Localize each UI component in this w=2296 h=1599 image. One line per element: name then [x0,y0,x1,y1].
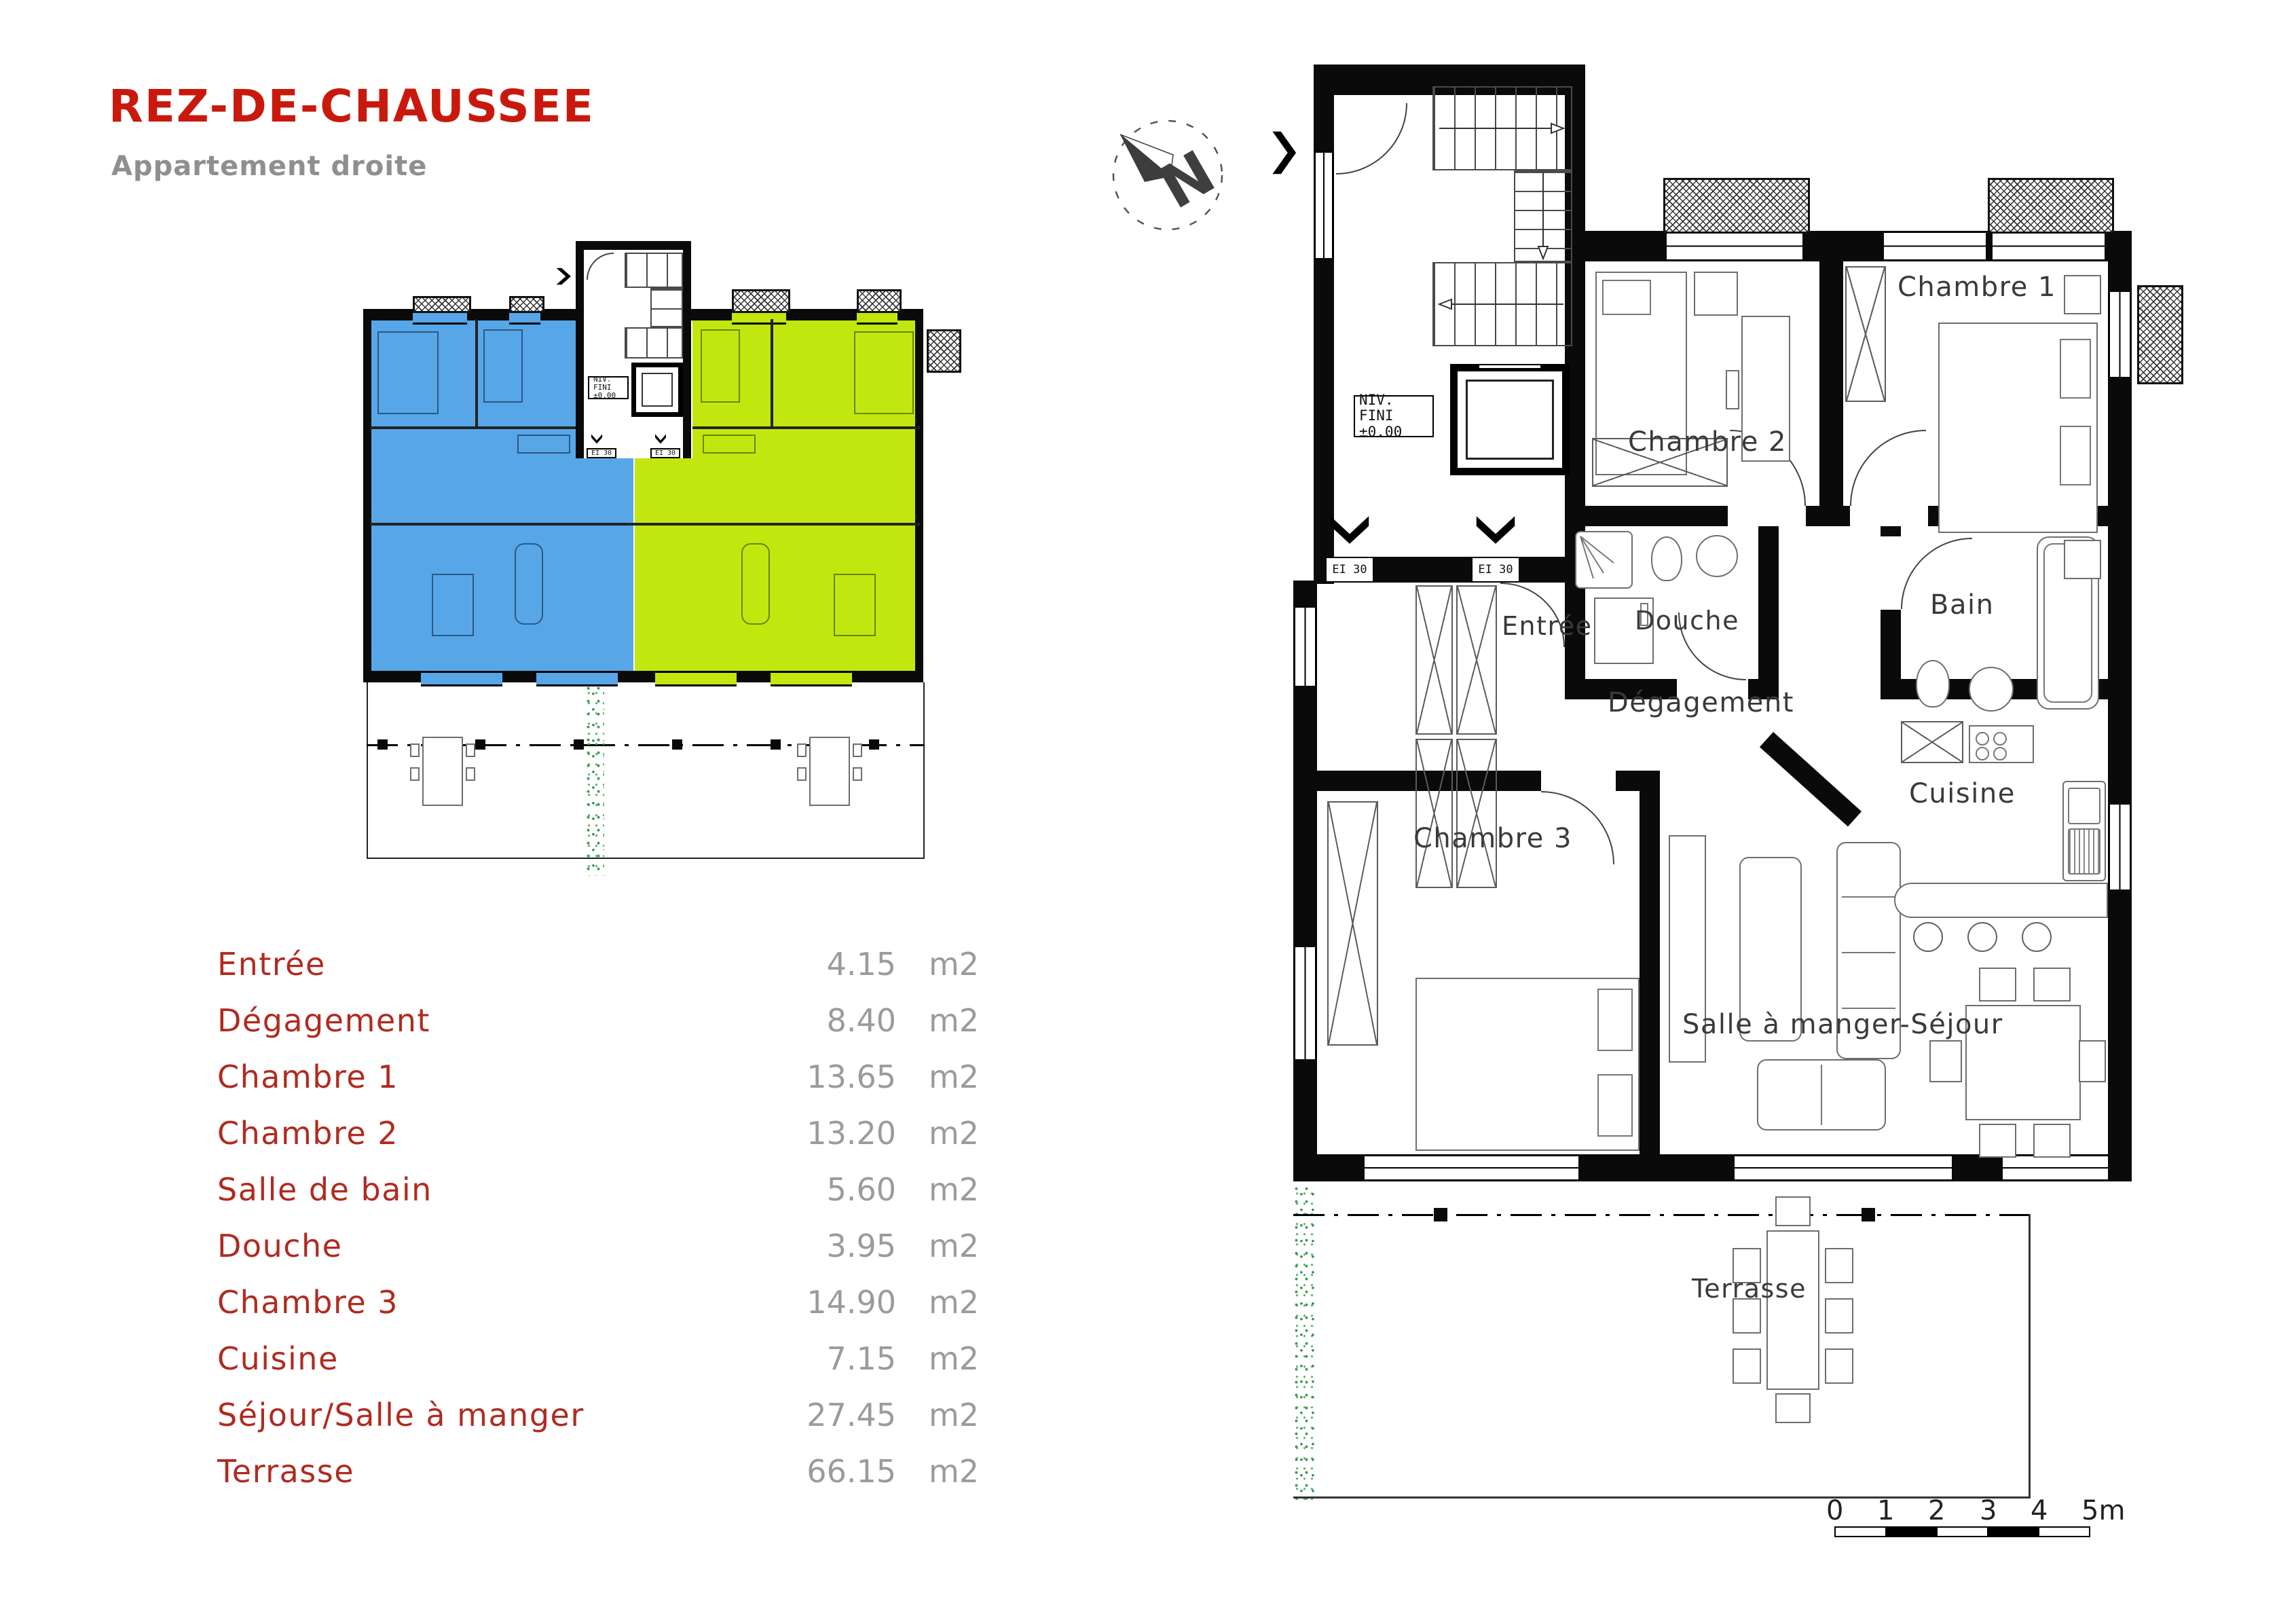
chair [1979,968,2016,1001]
balcony-hatch [927,329,961,373]
chair [2033,968,2071,1001]
scale-tick: 0 [1826,1495,1843,1526]
room-name: Chambre 1 [217,1059,399,1095]
scale-tick: 1 [1877,1495,1894,1526]
wall-segment-diagonal [1760,732,1862,826]
room-name: Chambre 3 [217,1284,399,1321]
stair-direction-arrow [1536,173,1551,260]
room-name: Terrasse [217,1453,354,1490]
niv-fini-value: ±0.00 [1359,424,1432,440]
furniture-bed [483,329,523,403]
stairs [625,327,683,359]
chair [853,767,862,781]
window [1735,1154,1952,1181]
post [377,739,388,750]
hedge-plants [1293,1185,1315,1501]
balcony-hatch [1988,178,2114,234]
window [2108,805,2132,889]
fire-rating-label: EI 30 [1325,557,1374,583]
wall-segment [1758,526,1779,699]
wall-segment [363,309,371,682]
chair [1825,1298,1853,1334]
overview-right-apartment-lower [635,458,920,681]
level-annotation: NIV. FINI ±0.00 [1354,395,1434,437]
furniture-wardrobe [1456,739,1497,888]
scale-tick: 2 [1928,1495,1945,1526]
window [1293,608,1317,686]
entry-arrow-icon [1271,124,1299,182]
kitchen-sink [2062,781,2106,881]
wall-segment [576,241,691,250]
window [2108,292,2132,377]
door-opening [1728,506,1806,526]
toilet [1916,660,1950,707]
chair [1733,1348,1761,1384]
post [1862,1208,1875,1221]
terrace-table [422,737,463,806]
furniture-wardrobe [517,435,570,454]
room-area: 4.15 [760,946,896,982]
kitchen-bar [1894,883,2108,918]
chair [466,767,475,781]
chair [1979,1124,2016,1158]
room-area: 66.15 [760,1453,896,1490]
wall-segment [2108,261,2132,1181]
sink [1696,535,1738,577]
balcony-hatch [857,289,902,313]
door-opening [1850,506,1928,526]
stair-direction-arrow [1438,297,1563,312]
cooktop [1969,725,2034,763]
wall-segment [1640,791,1660,1154]
room-area: 8.40 [760,1002,896,1039]
niv-fini-text: NIV. FINI [1359,392,1432,424]
partition [635,523,920,526]
area-unit: m2 [929,1397,979,1433]
chair [797,767,807,781]
furniture-table [432,574,474,636]
furniture-side-table [1694,272,1738,316]
post [869,739,879,750]
page-subtitle: Appartement droite [111,151,427,182]
room-name: Dégagement [217,1002,430,1039]
partition [475,319,478,428]
furniture-sofa [741,543,770,625]
balcony-hatch [732,289,790,313]
stairs [650,288,683,327]
room-area: 14.90 [760,1284,896,1321]
area-unit: m2 [929,1171,979,1208]
chair [2033,1124,2071,1158]
terrace-edge [1293,1496,2031,1499]
exit-arrow-icon [1329,509,1370,553]
chair [1825,1248,1853,1283]
furniture-wardrobe [1327,801,1378,1046]
area-unit: m2 [929,1115,979,1152]
room-label-chambre-2: Chambre 2 [1628,426,1787,458]
room-label-douche: Douche [1635,606,1739,636]
window [1884,231,1986,261]
wall-segment [576,241,584,458]
room-label-degagement: Dégagement [1608,687,1794,718]
furniture-wardrobe [1415,739,1453,888]
chair [466,743,475,757]
furniture-wardrobe [1415,585,1453,735]
furniture-bed [854,331,914,414]
fire-rating-label: EI 30 [587,448,616,458]
scale-tick: 5m [2081,1495,2125,1526]
floor-plan-sheet: REZ-DE-CHAUSSEE Appartement droite N [0,0,2296,1599]
window [1667,231,1802,261]
chair [797,743,807,757]
scale-segment [1834,1526,1887,1537]
room-name: Douche [217,1228,342,1264]
wall-segment [1819,261,1843,506]
furniture-chair [1726,370,1739,409]
door-arc [1336,103,1407,174]
scale-tick: 3 [1980,1495,1997,1526]
furniture-wardrobe [703,435,756,454]
terrace-table [809,737,850,806]
chair [410,743,420,757]
area-unit: m2 [929,1340,979,1377]
fire-rating-label: EI 30 [650,448,680,458]
sink [1969,667,2014,712]
room-name: Cuisine [217,1340,339,1377]
chair [1775,1196,1811,1226]
area-unit: m2 [929,1059,979,1095]
room-label-cuisine: Cuisine [1909,778,2016,809]
terrace-edge [2029,1214,2031,1498]
scale-segment [1987,1526,2039,1537]
scale-segment [1885,1526,1938,1537]
room-label-entree: Entrée [1502,611,1593,641]
furniture-wardrobe [1456,585,1497,735]
balcony-hatch [413,296,471,313]
room-label-bain: Bain [1930,589,1994,621]
page-title: REZ-DE-CHAUSSEE [109,80,595,132]
chair [1775,1393,1811,1423]
chair [853,743,862,757]
area-unit: m2 [929,1228,979,1264]
window [1293,947,1317,1059]
room-area: 13.65 [760,1059,896,1095]
area-unit: m2 [929,1453,979,1490]
chair [1825,1348,1853,1384]
window [1365,1154,1578,1181]
room-area: 13.20 [760,1115,896,1152]
furniture-side-table [2064,275,2101,314]
window [1314,153,1334,258]
hedge-plants [585,684,604,876]
chair [1929,1040,1962,1082]
stairs [625,253,683,288]
entry-arrow-icon [555,265,573,288]
chair [2079,1040,2106,1082]
partition [771,319,773,428]
furniture-loveseat [1757,1059,1886,1131]
door-opening [1881,536,1901,610]
post [475,739,485,750]
toilet [1651,536,1682,581]
wall-segment [915,309,923,682]
room-label-terrasse: Terrasse [1692,1274,1807,1304]
exit-arrow-icon [1475,509,1516,553]
window [1993,231,2105,261]
partition [692,426,920,429]
kitchen-cabinet [1901,721,1963,763]
scale-segment [2038,1526,2090,1537]
furniture-bed [701,329,740,403]
room-label-chambre-1: Chambre 1 [1897,272,2056,303]
fire-rating-label: EI 30 [1471,557,1520,583]
room-label-chambre-3: Chambre 3 [1413,823,1572,854]
bar-stool [2022,922,2052,952]
post [771,739,781,750]
furniture-sofa [515,543,543,625]
balcony-hatch [1663,178,1810,234]
exit-arrow-icon [653,432,668,447]
wall-segment [1616,771,1660,791]
room-label-sejour: Salle à manger-Séjour [1682,1009,2003,1040]
door-arc [1850,430,1926,506]
post [672,739,682,750]
bar-stool [1967,922,1997,952]
balcony-hatch [509,296,544,313]
terrace-boundary-line [1293,1214,2030,1216]
niv-fini-value: ±0.00 [593,392,627,400]
partition [370,523,635,526]
room-area: 27.45 [760,1397,896,1433]
post [1434,1208,1447,1221]
niv-fini-text: NIV. FINI [593,375,627,392]
furniture-bed [377,331,439,414]
area-unit: m2 [929,1002,979,1039]
post [574,739,584,750]
scale-segment [1936,1526,1988,1537]
level-annotation: NIV. FINI ±0.00 [588,376,629,399]
scale-tick: 4 [2031,1495,2048,1526]
bar-stool [1913,922,1943,952]
furniture-side-table [2064,540,2101,579]
partition [370,426,576,429]
chair [410,767,420,781]
elevator [1450,364,1570,475]
balcony-hatch [2137,285,2183,384]
room-name: Chambre 2 [217,1115,399,1152]
room-area: 5.60 [760,1171,896,1208]
room-name: Salle de bain [217,1171,432,1208]
north-compass-icon: N [1105,114,1227,236]
furniture-wardrobe [1845,266,1886,402]
window [2003,1154,2108,1181]
overview-left-apartment-lower [370,458,633,681]
room-area: 7.15 [760,1340,896,1377]
furniture-double-bed [1938,323,2098,533]
elevator [631,363,683,417]
room-name: Entrée [217,946,326,982]
room-area: 3.95 [760,1228,896,1264]
room-name: Séjour/Salle à manger [217,1397,585,1433]
area-unit: m2 [929,946,979,982]
shower [1575,531,1633,589]
area-unit: m2 [929,1284,979,1321]
stair-direction-arrow [1439,121,1565,136]
furniture-table [834,574,876,636]
furniture-double-bed [1415,978,1640,1151]
exit-arrow-icon [589,432,604,447]
wall-segment [683,241,691,458]
terrace-table [1766,1230,1819,1390]
